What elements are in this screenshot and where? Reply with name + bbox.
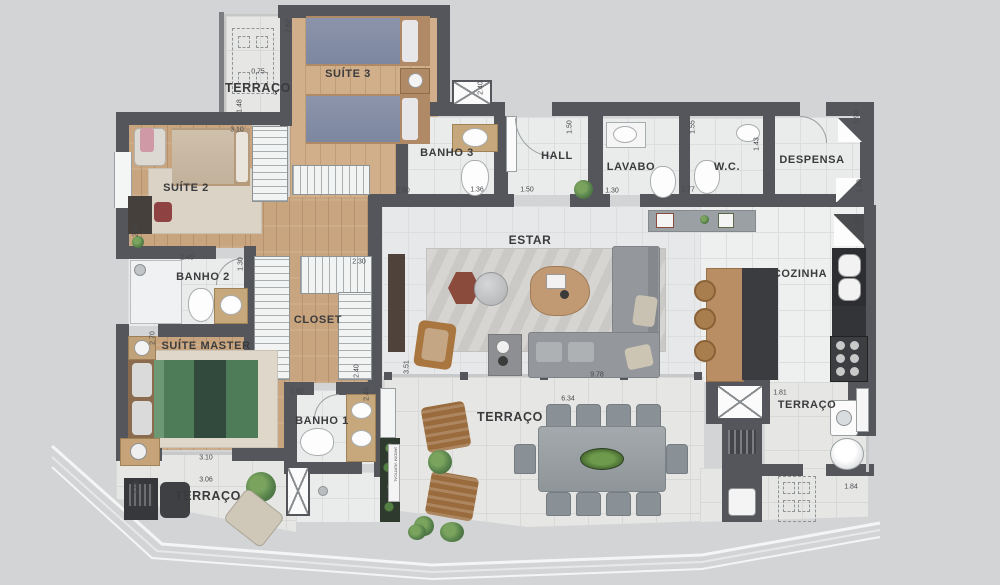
wall	[679, 116, 690, 194]
dim-label: 1.77	[681, 187, 695, 194]
dim-label: 1.48	[237, 99, 244, 113]
suite2-throw	[140, 128, 154, 152]
bar-stool	[694, 340, 716, 362]
laundry-tank	[830, 438, 864, 470]
sideboard-plant-icon	[700, 215, 709, 224]
kitchen-sink-bowl	[838, 278, 861, 301]
service-faucet	[318, 486, 328, 496]
dim-label: 1.90	[854, 110, 861, 124]
stove-burner	[836, 354, 845, 363]
wall	[640, 194, 864, 207]
dim-label: 1.50	[520, 187, 534, 194]
dim-label: 3.51	[404, 360, 411, 374]
terrace-furniture-outline	[798, 500, 810, 512]
dim-label: 1.30	[605, 188, 619, 195]
wall	[219, 12, 224, 116]
round-side-table	[474, 272, 508, 306]
dining-chair	[576, 492, 601, 516]
wall	[763, 116, 775, 205]
suite3-bed-blanket	[306, 18, 400, 64]
grill-counter-sink	[130, 443, 147, 460]
room-label-banho3: BANHO 3	[420, 147, 474, 159]
terrace-furniture-outline	[798, 482, 810, 494]
door-frame	[460, 372, 468, 380]
terrace-furniture-outline	[238, 36, 250, 48]
banho1-toilet	[300, 428, 334, 456]
room-label-hall: HALL	[541, 150, 573, 162]
dining-chair	[546, 404, 571, 428]
door-frame	[694, 372, 702, 380]
dining-chair	[636, 492, 661, 516]
coffee-table-tray	[560, 290, 569, 299]
room-label-terraco-tl: TERRAÇO	[225, 81, 291, 95]
banho1-sink	[351, 402, 372, 419]
dim-label: 2.50	[133, 223, 140, 237]
suite-master-pillows	[132, 401, 152, 435]
suite3-bed-pillow	[402, 20, 418, 62]
terrace-furniture-outline	[783, 500, 795, 512]
bar-stool	[694, 280, 716, 302]
dining-chair	[606, 492, 631, 516]
door-frame	[384, 372, 392, 380]
dining-centerpiece	[580, 448, 624, 470]
dim-label: 3.10	[230, 127, 244, 134]
dim-label: 6.34	[561, 396, 575, 403]
dim-label: 2.40	[354, 364, 361, 378]
wall	[368, 194, 514, 207]
sliding-door-track	[162, 452, 232, 455]
banho1-sink	[351, 430, 372, 447]
plant-icon	[132, 236, 144, 248]
suite3-bed-blanket	[306, 96, 400, 142]
dining-chair	[576, 404, 601, 428]
dim-label: 2.40	[478, 81, 485, 95]
room-label-terraco-bm: TERRAÇO	[477, 410, 543, 424]
dim-label: 1.50	[857, 179, 864, 193]
suite2-bed-pillow	[236, 132, 248, 182]
terrace-furniture-outline	[783, 482, 795, 494]
duct-shaft	[286, 466, 310, 516]
room-label-closet: CLOSET	[294, 314, 342, 326]
room-label-terraco-bl: TERRAÇO	[175, 489, 241, 503]
coffee-table-books	[546, 274, 566, 289]
sideboard-frame	[718, 213, 734, 228]
lavabo-sink	[613, 126, 637, 143]
bar-stool	[694, 308, 716, 330]
duct-shaft	[452, 80, 492, 106]
dining-chair	[546, 492, 571, 516]
plant-icon	[440, 522, 464, 542]
stove-burner	[836, 367, 845, 376]
dim-label: 1.43	[754, 137, 761, 151]
wall	[232, 448, 297, 461]
kitchen-sink-bowl	[838, 254, 861, 277]
dim-label: 2.70	[150, 331, 157, 345]
wall	[773, 102, 800, 116]
dining-chair	[606, 404, 631, 428]
dim-label: 2.45	[364, 387, 371, 401]
floor-plan: JARDIM VERTICAL TERRAÇO SUÍTE 3 SUÍTE 2 …	[0, 0, 1000, 585]
estar-console-west	[388, 254, 405, 352]
room-label-terraco-r: TERRAÇO	[778, 399, 837, 411]
kitchen-cabinet	[832, 306, 866, 336]
suite2-desk-chair	[154, 202, 172, 222]
suite-master-duvet	[154, 360, 258, 438]
washer-door	[836, 410, 852, 426]
suite3-lamp	[408, 73, 423, 88]
terrace-rail	[866, 436, 869, 472]
kitchen-island-dark	[742, 268, 778, 380]
wall	[552, 102, 608, 116]
suite3-wardrobe	[292, 165, 370, 195]
dim-label: 2.62	[286, 19, 293, 33]
plant-icon	[408, 524, 426, 540]
banho2-shower-head	[134, 264, 146, 276]
elevator-shaft	[716, 384, 764, 420]
dim-label: 3.56	[855, 216, 862, 230]
dining-chair	[636, 404, 661, 428]
door-leaf	[380, 388, 396, 438]
room-label-suite2: SUÍTE 2	[163, 182, 209, 194]
dim-label: 1.36	[470, 187, 484, 194]
suite2-bed-blanket	[172, 130, 234, 184]
wall	[116, 246, 216, 259]
room-label-cozinha: COZINHA	[773, 268, 827, 280]
wall	[116, 112, 288, 125]
dim-label: 3.10	[199, 455, 213, 462]
banho2-sink	[220, 295, 242, 315]
plant-icon	[428, 450, 452, 474]
dim-label: 1.30	[238, 257, 245, 271]
room-label-suite-master: SUÍTE MASTER	[161, 340, 250, 352]
cabinet-lamp	[496, 340, 510, 354]
dim-label: 3.06	[199, 477, 213, 484]
wall	[608, 102, 773, 116]
wall	[158, 324, 256, 337]
door-leaf	[856, 388, 869, 432]
room-label-banho1: BANHO 1	[295, 415, 349, 427]
dim-label: 2.30	[352, 259, 366, 266]
bbq-grate	[728, 430, 756, 454]
sideboard-frame	[656, 213, 674, 228]
banho2-toilet	[188, 288, 214, 322]
stove-burner	[850, 354, 859, 363]
dim-label: 9.78	[590, 372, 604, 379]
dim-label: 1.06	[134, 480, 141, 494]
room-label-banho2: BANHO 2	[176, 271, 230, 283]
wall	[437, 5, 450, 105]
suite3-bed-pillow	[402, 98, 418, 140]
room-label-lavabo: LAVABO	[607, 161, 655, 173]
banho3-sink	[462, 128, 488, 147]
vertical-garden-label: JARDIM VERTICAL	[388, 444, 400, 502]
room-label-estar: ESTAR	[509, 233, 552, 247]
dim-label: 1.55	[690, 120, 697, 134]
room-label-suite3: SUÍTE 3	[325, 68, 371, 80]
dim-label: 1.81	[773, 390, 787, 397]
sofa-pillow	[632, 295, 658, 328]
sofa-cushion	[536, 342, 562, 362]
cabinet-kettle	[498, 356, 508, 366]
dining-chair	[514, 444, 536, 474]
hall-plant-icon	[574, 180, 593, 199]
sofa-cushion	[568, 342, 594, 362]
dim-label: 2.50	[396, 188, 410, 195]
stove-burner	[836, 341, 845, 350]
estar-armchair-cushion	[421, 327, 449, 362]
dining-chair	[666, 444, 688, 474]
wall	[751, 464, 803, 476]
dim-label: 1.84	[844, 484, 858, 491]
room-label-despensa: DESPENSA	[779, 154, 844, 166]
stove-burner	[850, 341, 859, 350]
dim-label: 1.85	[290, 389, 304, 396]
dim-label: 1.50	[567, 120, 574, 134]
nightstand-lamp	[134, 340, 150, 356]
bbq-sink	[728, 488, 756, 516]
suite2-wardrobe	[252, 126, 288, 202]
dim-label: 2.40	[180, 255, 194, 262]
vertical-garden-label-text: JARDIM VERTICAL	[394, 447, 399, 457]
room-label-wc: W.C.	[714, 161, 740, 173]
suite-master-pillows	[132, 363, 152, 397]
terrace-wood-armchair	[425, 470, 480, 522]
dim-label: 0.75	[251, 69, 265, 76]
stove-burner	[850, 367, 859, 376]
terrace-wood-armchair	[420, 401, 471, 454]
terrace-furniture-outline	[256, 36, 268, 48]
